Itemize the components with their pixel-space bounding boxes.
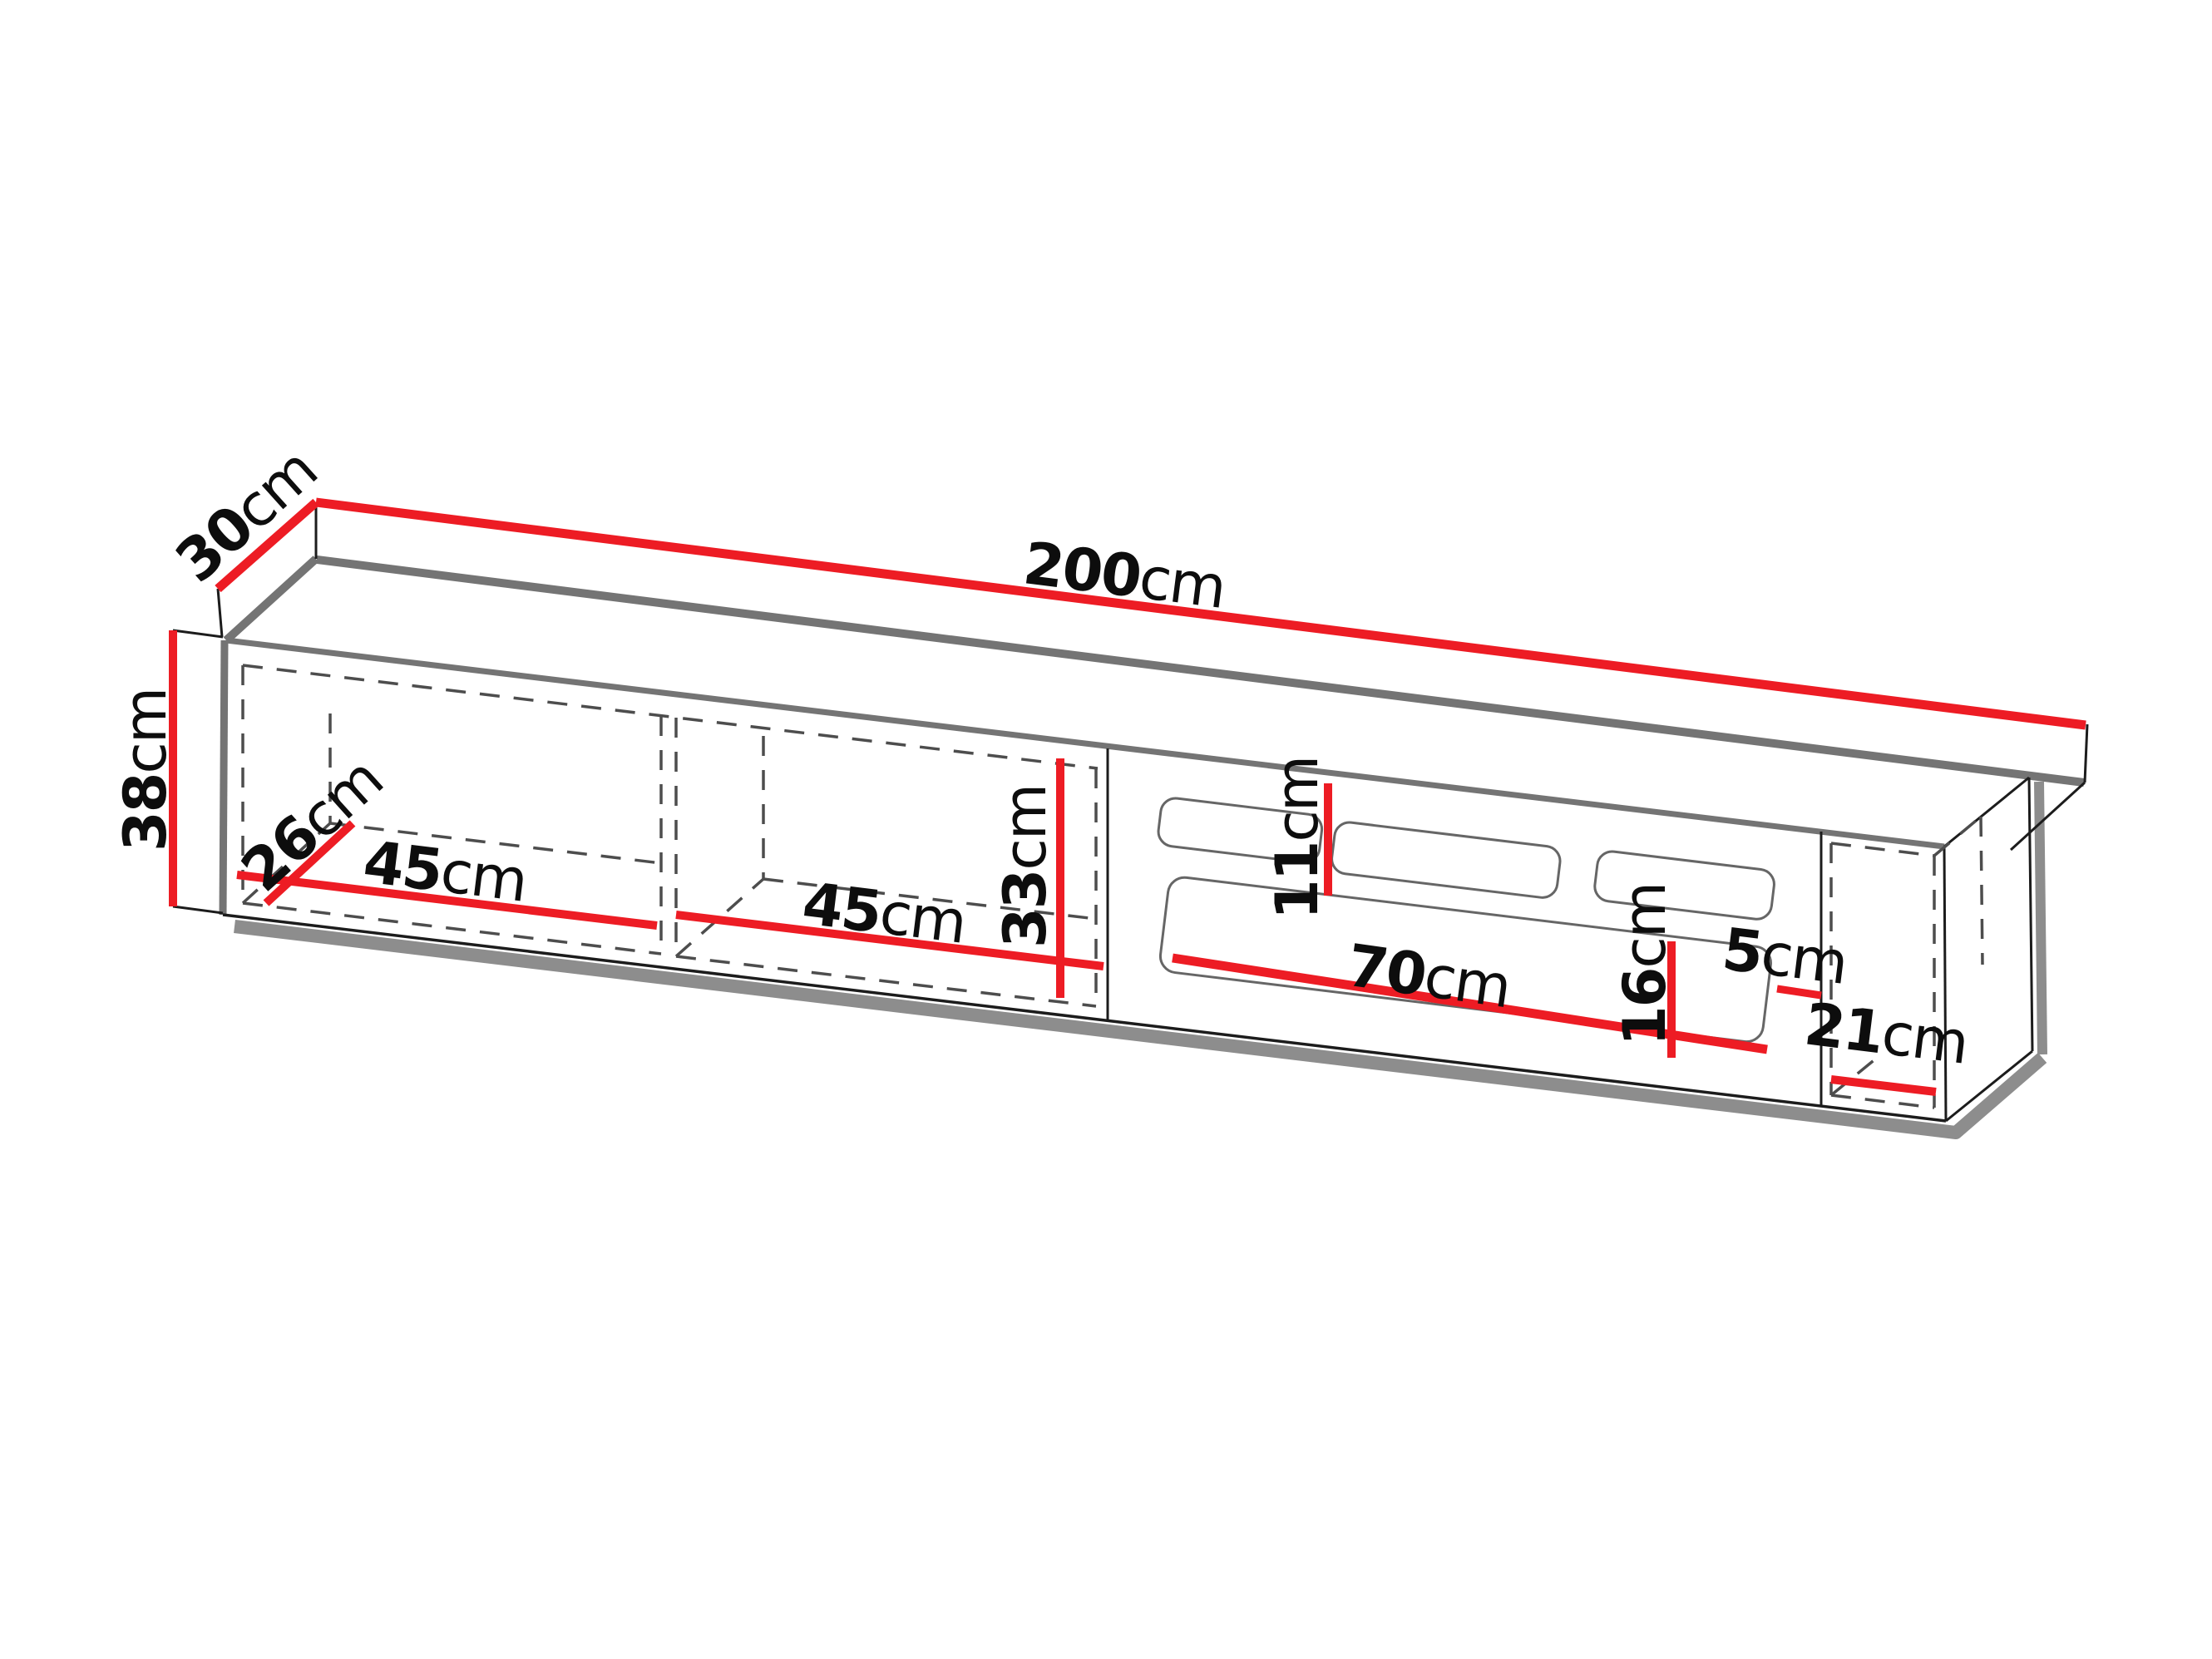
height-bottom-tick <box>173 906 223 913</box>
dimension-unit: cm <box>111 689 180 774</box>
dimension-unit: cm <box>1420 942 1514 1021</box>
depth-tick <box>218 589 222 637</box>
dimension-label-45cm-left: 45cm <box>360 832 529 910</box>
dimension-unit: cm <box>1611 883 1679 969</box>
dimension-unit: cm <box>991 785 1059 871</box>
side-panel-rear-edge <box>2029 778 2032 1051</box>
dimension-ticks <box>173 589 223 913</box>
height-top-tick <box>173 630 223 637</box>
dimension-value: 33 <box>991 871 1059 948</box>
dimension-unit: cm <box>437 837 530 916</box>
dimension-label-38cm: 38cm <box>116 689 175 852</box>
dimension-value: 200 <box>1020 529 1143 611</box>
dimension-unit: cm <box>1135 544 1228 622</box>
front-left-edge <box>223 640 225 915</box>
side-panel-top-edge <box>1944 778 2029 847</box>
dimension-label-16cm: 16cm <box>1616 883 1674 1046</box>
open-section-top-dashed <box>243 665 1098 768</box>
dimension-unit: cm <box>1878 1000 1971 1078</box>
dimension-label-5cm: 5cm <box>1720 920 1850 993</box>
top-panel-right-vertical-edge <box>2085 724 2087 783</box>
dimension-value: 70 <box>1343 931 1429 1010</box>
dimension-value: 11 <box>1263 842 1331 920</box>
upper-slot-2 <box>1331 821 1562 899</box>
dimension-unit: cm <box>876 879 969 957</box>
front-right-edge <box>1944 847 1946 1121</box>
dimension-label-21cm: 21cm <box>1801 995 1970 1072</box>
right-compartment-rear-dashed <box>1981 817 1982 965</box>
dimension-line-21cm <box>1831 1079 1936 1092</box>
top-panel-right-depth-edge <box>2011 783 2085 850</box>
furniture-dimension-diagram: 30cm 200cm 38cm 26cm 45cm 45cm 33cm 11cm… <box>0 0 2212 1659</box>
dimension-value: 45 <box>360 827 446 905</box>
dimension-value: 21 <box>1801 990 1887 1067</box>
dimension-label-45cm-right: 45cm <box>799 874 968 951</box>
dimension-label-11cm: 11cm <box>1268 757 1326 920</box>
dimension-value: 45 <box>799 869 885 946</box>
dimension-unit: cm <box>1263 757 1331 842</box>
right-compartment-bottom-dashed <box>1831 1095 1934 1108</box>
dimension-label-33cm: 33cm <box>996 785 1054 948</box>
dimension-unit: cm <box>1757 920 1850 998</box>
dimension-value: 16 <box>1611 969 1679 1046</box>
dimension-value: 38 <box>111 774 180 852</box>
